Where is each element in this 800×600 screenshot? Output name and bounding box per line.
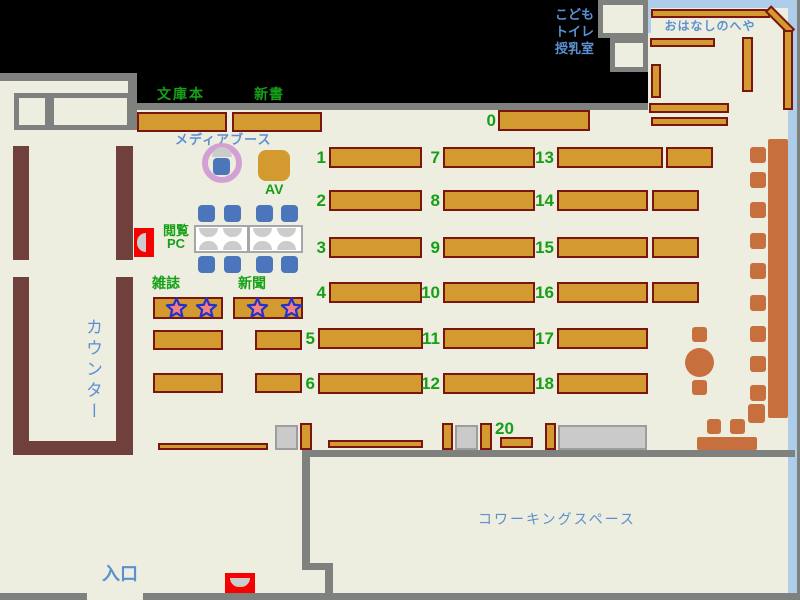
shelf-number-label: 15 [524, 238, 554, 257]
window-seat [750, 356, 766, 372]
bookshelf [742, 37, 753, 92]
window-seat [750, 233, 766, 249]
bookshelf [153, 373, 223, 393]
partition [13, 146, 29, 260]
storage-box [275, 425, 298, 450]
bookshelf-7 [443, 147, 535, 168]
pc-chair [198, 205, 215, 222]
bookshelf-14 [557, 190, 648, 211]
reading-pc-label: 閲覧 PC [160, 224, 192, 250]
bookshelf-4 [329, 282, 422, 303]
low-shelf [328, 440, 423, 448]
shelf-number-label: 12 [410, 374, 440, 393]
staff-desk [14, 93, 50, 130]
storytelling-room-label: おはなしのへや [660, 18, 760, 35]
kids-label-line1: こども [524, 6, 594, 23]
shelf-number-label: 13 [524, 148, 554, 167]
wall [0, 73, 137, 81]
shelf-number-label: 5 [285, 329, 315, 348]
av-booth [258, 150, 290, 181]
coworking-wall-left [302, 450, 310, 570]
shelf-number-label: 17 [524, 329, 554, 348]
table-seat [692, 327, 707, 342]
shinsho-label: 新書 [254, 87, 284, 102]
newspapers-label: 新聞 [238, 276, 266, 291]
shelf-number-label: 16 [524, 283, 554, 302]
kids-area-label: こども トイレ 授乳室 [524, 6, 594, 57]
bookshelf-5 [318, 328, 423, 349]
shelf-number-label: 8 [410, 191, 440, 210]
bunkobon-label: 文庫本 [157, 87, 205, 102]
nursing-room [610, 38, 648, 72]
shelf-number-label: 4 [296, 283, 326, 302]
shelf-number-label: 18 [524, 374, 554, 393]
window-seat [750, 263, 766, 279]
shelf-number-label: 3 [296, 238, 326, 257]
reading-pc-label-line2: PC [160, 237, 192, 250]
counter-right [116, 277, 133, 441]
shelf-number-label: 0 [468, 111, 496, 130]
bookshelf-20 [500, 437, 533, 448]
bookshelf-9 [443, 237, 535, 258]
window-seat [750, 147, 766, 163]
bookshelf [783, 30, 793, 110]
bookshelf-18 [557, 373, 648, 394]
bookshelf [545, 423, 556, 450]
bookshelf-13 [557, 147, 663, 168]
window-top [648, 0, 797, 8]
bookshelf [153, 330, 223, 350]
corner-seat [707, 419, 721, 434]
window-counter [768, 139, 788, 418]
bookshelf-6 [318, 373, 423, 394]
star-icon [246, 297, 269, 320]
bookshelf [650, 38, 715, 47]
bookshelf-12 [443, 373, 535, 394]
coworking-label: コワーキングスペース [478, 511, 636, 528]
bookshelf [651, 9, 770, 18]
bookshelf [651, 64, 661, 98]
bookshelf [442, 423, 453, 450]
wall-bottom [143, 593, 800, 600]
counter-bottom [13, 441, 133, 455]
av-label: AV [265, 182, 283, 197]
counter-left [13, 277, 29, 455]
bookshelf-11 [443, 328, 535, 349]
table-seat [692, 380, 707, 395]
library-floor-map: こども トイレ 授乳室 おはなしのへや カウンター 文庫本 新書 0 メディアブ… [0, 0, 800, 600]
bookshelf [300, 423, 312, 450]
bookshelf [652, 190, 699, 211]
entrance-label: 入口 [102, 566, 138, 583]
bench [697, 437, 757, 450]
storage-box [558, 425, 647, 450]
counter-label: カウンター [84, 318, 101, 423]
bookshelf-1 [329, 147, 422, 168]
window-seat [750, 385, 766, 401]
wall-bottom-left [0, 593, 87, 600]
kids-label-line3: 授乳室 [524, 40, 594, 57]
pc-chair [256, 256, 273, 273]
pc-chair [281, 256, 298, 273]
shelf-number-label: 9 [410, 238, 440, 257]
shelf-number-label: 7 [410, 148, 440, 167]
kids-toilet-room [598, 0, 648, 38]
bookshelf [651, 117, 728, 126]
bunkobon-shelf [137, 112, 227, 132]
bookshelf-15 [557, 237, 648, 258]
coworking-wall-top [303, 450, 795, 457]
pc-chair [224, 256, 241, 273]
bookshelf-3 [329, 237, 422, 258]
window-seat [750, 295, 766, 311]
media-booth-seat [213, 158, 230, 175]
corner-seat [748, 404, 765, 423]
low-shelf [158, 443, 268, 450]
shinsho-shelf [232, 112, 322, 132]
shelf-number-label: 2 [296, 191, 326, 210]
shelf-number-label: 20 [495, 419, 525, 438]
entrance-gap [87, 593, 143, 600]
bookshelf [652, 237, 699, 258]
bookshelf [480, 423, 492, 450]
bookshelf-8 [443, 190, 535, 211]
shelf-number-label: 14 [524, 191, 554, 210]
pc-chair [281, 205, 298, 222]
corner-seat [730, 419, 745, 434]
storage-box [455, 425, 478, 450]
staff-desk [49, 93, 132, 130]
bookshelf-0 [498, 110, 590, 131]
pc-chair [256, 205, 273, 222]
shelf-number-label: 1 [296, 148, 326, 167]
bookshelf [649, 103, 729, 113]
bookshelf-2 [329, 190, 422, 211]
bookshelf-17 [557, 328, 648, 349]
bookshelf [666, 147, 713, 168]
shelf-number-label: 11 [410, 329, 440, 348]
star-icon [165, 297, 188, 320]
bookshelf-16 [557, 282, 648, 303]
shelf-number-label: 6 [285, 374, 315, 393]
window-seat [750, 326, 766, 342]
kids-label-line2: トイレ [524, 23, 594, 40]
star-icon [195, 297, 218, 320]
bookshelf-10 [443, 282, 535, 303]
bookshelf [652, 282, 699, 303]
magazines-label: 雑誌 [152, 276, 180, 291]
partition [116, 146, 133, 260]
round-table [685, 348, 714, 377]
wall [135, 103, 648, 110]
pc-chair [198, 256, 215, 273]
shelf-number-label: 10 [410, 283, 440, 302]
window-seat [750, 172, 766, 188]
window-seat [750, 202, 766, 218]
pc-chair [224, 205, 241, 222]
